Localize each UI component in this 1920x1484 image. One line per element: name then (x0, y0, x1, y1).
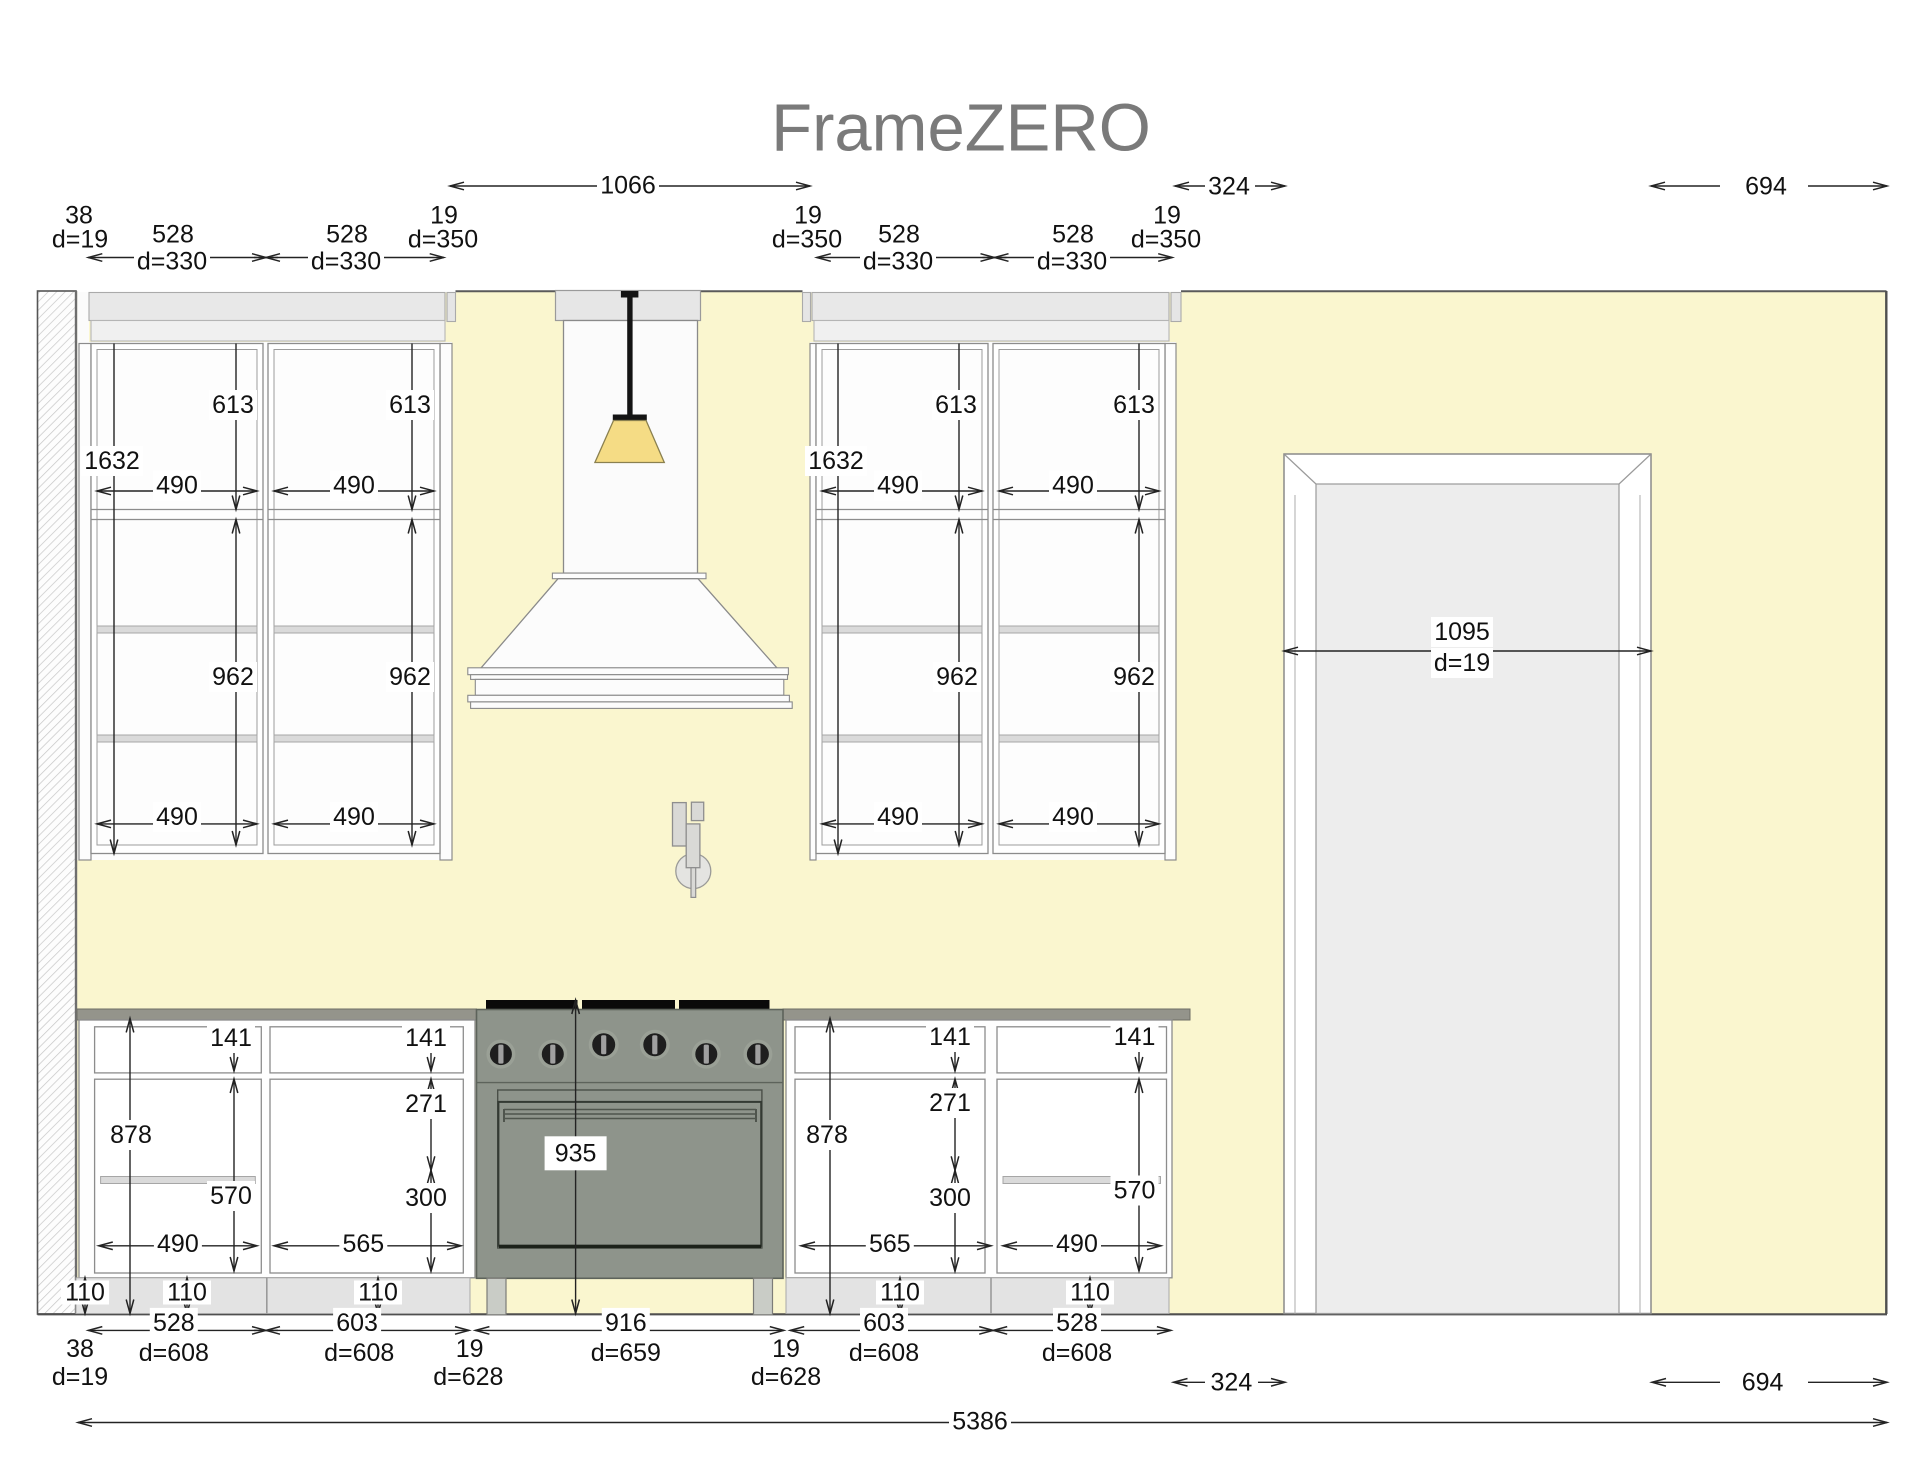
svg-text:490: 490 (157, 1230, 199, 1258)
svg-text:1066: 1066 (600, 172, 656, 200)
svg-text:490: 490 (1052, 803, 1094, 831)
svg-text:528: 528 (878, 221, 920, 249)
svg-text:110: 110 (1070, 1279, 1110, 1307)
svg-text:878: 878 (806, 1121, 848, 1149)
svg-text:d=330: d=330 (1037, 248, 1107, 276)
svg-text:613: 613 (935, 391, 977, 419)
svg-text:110: 110 (167, 1279, 207, 1307)
svg-text:565: 565 (869, 1230, 911, 1258)
svg-text:271: 271 (405, 1090, 447, 1118)
svg-text:324: 324 (1208, 173, 1250, 201)
svg-text:271: 271 (929, 1089, 971, 1117)
svg-text:d=608: d=608 (139, 1339, 209, 1367)
svg-text:694: 694 (1742, 1368, 1784, 1396)
svg-text:d=19: d=19 (1434, 649, 1490, 677)
svg-text:490: 490 (333, 472, 375, 500)
svg-text:490: 490 (877, 803, 919, 831)
svg-text:d=608: d=608 (324, 1339, 394, 1367)
svg-text:878: 878 (110, 1121, 152, 1149)
svg-text:d=19: d=19 (52, 1363, 108, 1391)
svg-text:962: 962 (936, 663, 978, 691)
svg-text:300: 300 (929, 1184, 971, 1212)
svg-text:565: 565 (342, 1230, 384, 1258)
svg-text:1632: 1632 (84, 447, 140, 475)
svg-text:141: 141 (929, 1023, 971, 1051)
svg-text:570: 570 (1114, 1177, 1156, 1205)
svg-text:603: 603 (336, 1309, 378, 1337)
svg-text:1095: 1095 (1434, 618, 1490, 646)
svg-text:d=330: d=330 (863, 248, 933, 276)
svg-text:603: 603 (863, 1309, 905, 1337)
svg-text:d=330: d=330 (137, 248, 207, 276)
svg-text:141: 141 (210, 1024, 252, 1052)
svg-text:694: 694 (1745, 173, 1787, 201)
svg-text:962: 962 (212, 663, 254, 691)
svg-text:613: 613 (389, 391, 431, 419)
svg-text:962: 962 (389, 663, 431, 691)
svg-text:528: 528 (1056, 1309, 1098, 1337)
svg-text:528: 528 (326, 221, 368, 249)
svg-text:110: 110 (880, 1279, 920, 1307)
svg-text:d=608: d=608 (1042, 1339, 1112, 1367)
svg-text:d=628: d=628 (433, 1363, 503, 1391)
svg-text:5386: 5386 (952, 1408, 1008, 1436)
svg-text:d=628: d=628 (751, 1363, 821, 1391)
svg-text:570: 570 (210, 1182, 252, 1210)
svg-text:1632: 1632 (808, 447, 864, 475)
svg-text:490: 490 (333, 803, 375, 831)
svg-text:d=350: d=350 (1131, 226, 1201, 254)
svg-text:916: 916 (605, 1309, 647, 1337)
svg-text:110: 110 (358, 1279, 398, 1307)
svg-text:19: 19 (772, 1335, 800, 1363)
svg-text:FrameZERO: FrameZERO (771, 91, 1151, 166)
svg-text:490: 490 (1056, 1230, 1098, 1258)
svg-text:38: 38 (66, 1335, 94, 1363)
svg-text:300: 300 (405, 1184, 447, 1212)
svg-text:490: 490 (877, 472, 919, 500)
svg-text:110: 110 (65, 1279, 105, 1307)
svg-text:d=608: d=608 (849, 1339, 919, 1367)
svg-text:d=350: d=350 (772, 226, 842, 254)
svg-text:324: 324 (1211, 1368, 1253, 1396)
svg-text:d=659: d=659 (591, 1339, 661, 1367)
svg-text:141: 141 (405, 1024, 447, 1052)
svg-text:935: 935 (555, 1139, 597, 1167)
svg-text:490: 490 (1052, 472, 1094, 500)
svg-text:528: 528 (152, 221, 194, 249)
svg-text:962: 962 (1113, 663, 1155, 691)
svg-text:490: 490 (156, 472, 198, 500)
svg-text:141: 141 (1114, 1023, 1156, 1051)
svg-text:d=350: d=350 (408, 226, 478, 254)
svg-text:490: 490 (156, 803, 198, 831)
svg-text:528: 528 (1052, 221, 1094, 249)
svg-text:d=330: d=330 (311, 248, 381, 276)
svg-text:613: 613 (1113, 391, 1155, 419)
svg-text:19: 19 (456, 1335, 484, 1363)
svg-text:528: 528 (153, 1309, 195, 1337)
svg-text:613: 613 (212, 391, 254, 419)
svg-text:d=19: d=19 (52, 226, 108, 254)
